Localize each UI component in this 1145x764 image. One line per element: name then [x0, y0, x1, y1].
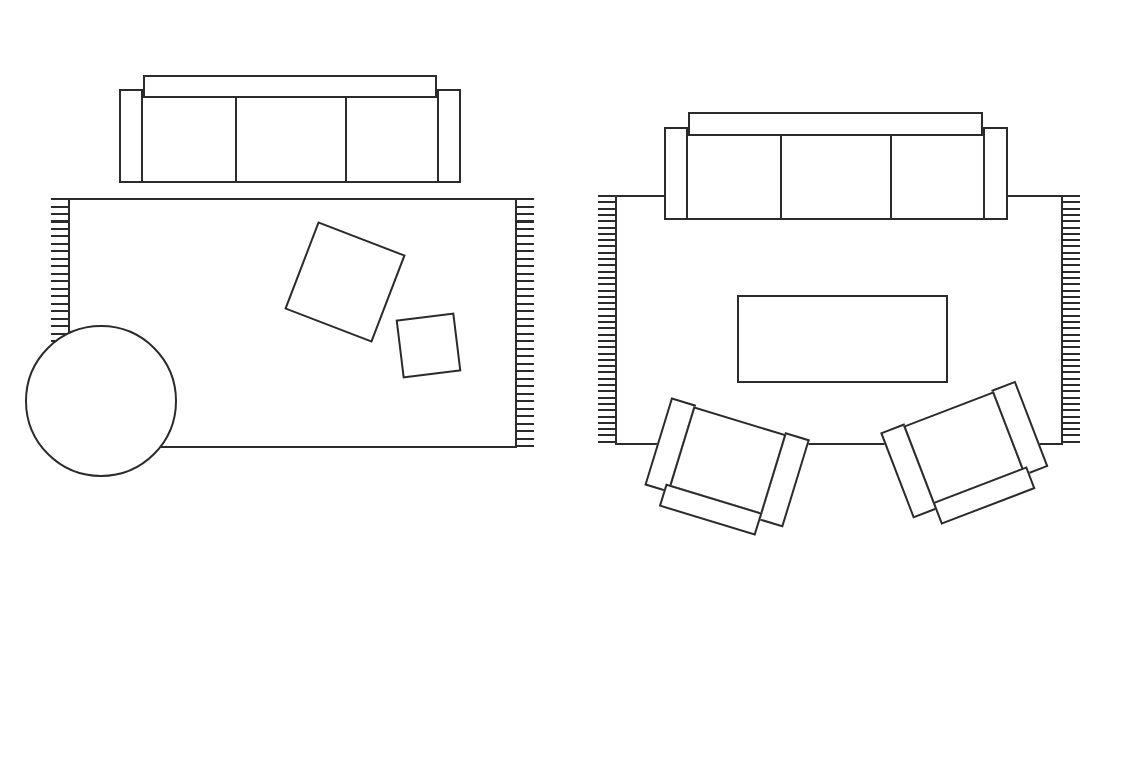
right-area-rug-fringe-right	[1061, 195, 1080, 445]
floor-plan-canvas	[0, 0, 1145, 764]
right-sofa-seat-cushions	[686, 134, 985, 220]
left-sofa	[119, 75, 461, 183]
right-area-rug-fringe-left	[598, 195, 617, 445]
right-coffee-table	[737, 295, 948, 383]
left-area-rug-fringe-right	[515, 198, 534, 448]
left-sofa-seat-cushions-divider-1	[235, 98, 237, 181]
left-sofa-backrest	[143, 75, 437, 98]
left-sofa-seat-cushions	[141, 96, 439, 183]
right-sofa-armrest-left	[664, 127, 688, 220]
right-sofa-backrest	[688, 112, 983, 136]
left-sofa-seat-cushions-divider-2	[345, 98, 347, 181]
left-round-side-table	[25, 325, 177, 477]
left-floor-cushion-small	[396, 313, 462, 379]
right-sofa-armrest-right	[983, 127, 1008, 220]
right-sofa-seat-cushions-divider-1	[780, 136, 782, 218]
left-sofa-armrest-left	[119, 89, 143, 183]
right-sofa	[664, 112, 1008, 220]
right-sofa-seat-cushions-divider-2	[890, 136, 892, 218]
left-sofa-armrest-right	[437, 89, 461, 183]
